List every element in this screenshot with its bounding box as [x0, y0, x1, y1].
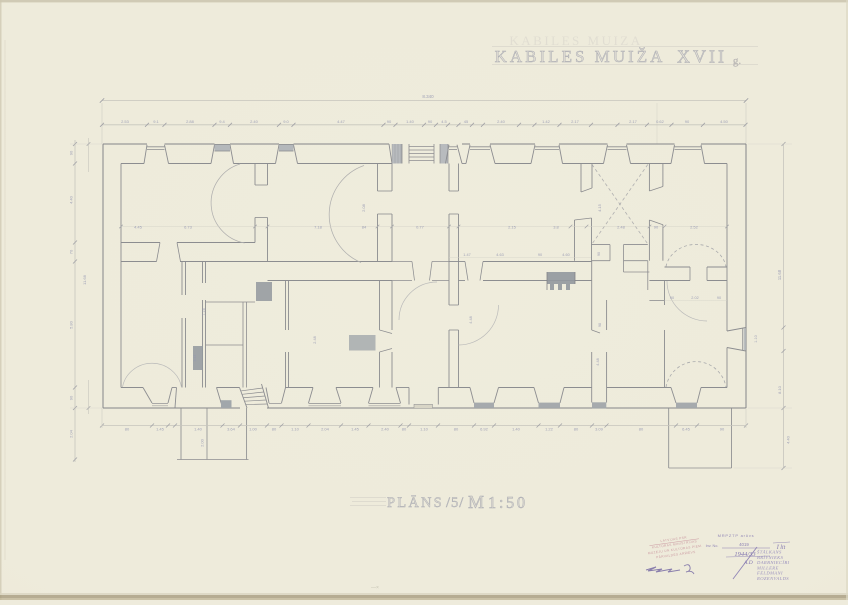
svg-text:7.16: 7.16 [202, 308, 206, 315]
svg-text:1.00: 1.00 [249, 427, 258, 432]
svg-text:98: 98 [598, 323, 602, 327]
svg-text:80: 80 [125, 427, 130, 432]
svg-text:2.48: 2.48 [617, 224, 626, 229]
svg-text:ŠTĀLKANS: ŠTĀLKANS [757, 550, 782, 555]
svg-text:90: 90 [387, 119, 392, 124]
svg-text:9.0: 9.0 [283, 119, 289, 124]
svg-text:80: 80 [272, 427, 277, 432]
svg-text:4.15: 4.15 [597, 203, 602, 212]
svg-text:1.22: 1.22 [545, 427, 554, 432]
svg-text:g.: g. [733, 55, 742, 67]
svg-text:90: 90 [654, 224, 659, 229]
svg-text:4019: 4019 [739, 542, 749, 547]
svg-text:6.73: 6.73 [184, 224, 193, 229]
svg-text:/5/: /5/ [446, 495, 464, 511]
svg-text:11.68: 11.68 [777, 269, 782, 280]
svg-text:4.48: 4.48 [596, 358, 600, 365]
svg-text:45: 45 [464, 119, 469, 124]
svg-text:4.40: 4.40 [69, 195, 74, 204]
svg-text:1.40: 1.40 [512, 427, 521, 432]
svg-text:84: 84 [362, 224, 367, 229]
svg-text:M: M [468, 492, 484, 512]
svg-text:2.15: 2.15 [508, 224, 517, 229]
svg-text:90: 90 [428, 119, 433, 124]
svg-text:KABILES MUIZA: KABILES MUIZA [509, 33, 642, 48]
svg-text:80: 80 [639, 427, 644, 432]
svg-text:4.60: 4.60 [562, 253, 569, 257]
svg-text:90: 90 [670, 296, 674, 300]
svg-text:1.10: 1.10 [420, 427, 429, 432]
svg-text:2.17: 2.17 [571, 119, 580, 124]
svg-text:XVII: XVII [677, 47, 727, 67]
svg-text:2.40: 2.40 [497, 119, 506, 124]
svg-text:9.4: 9.4 [219, 119, 225, 124]
svg-text:2.52: 2.52 [690, 224, 699, 229]
svg-text:PLĀNS: PLĀNS [387, 495, 444, 511]
svg-text:3.44: 3.44 [193, 355, 197, 362]
svg-text:8.340: 8.340 [422, 94, 434, 99]
svg-text:80: 80 [454, 427, 459, 432]
svg-text:90: 90 [538, 253, 542, 257]
svg-text:FELDMANI: FELDMANI [756, 571, 783, 576]
svg-text:A.D: A.D [743, 560, 753, 566]
svg-text:6.45: 6.45 [682, 427, 691, 432]
svg-text:1.47: 1.47 [463, 253, 470, 257]
svg-text:9.1: 9.1 [153, 119, 159, 124]
svg-text:2.04: 2.04 [321, 427, 330, 432]
svg-text:5.80: 5.80 [69, 320, 74, 329]
svg-text:DARBNIECĪBI: DARBNIECĪBI [756, 560, 790, 565]
svg-text:4.40: 4.40 [786, 435, 791, 444]
svg-text:MILLERE: MILLERE [756, 565, 779, 570]
svg-text:2.48: 2.48 [313, 336, 317, 343]
svg-text:1.10: 1.10 [291, 427, 300, 432]
svg-text:2.17: 2.17 [629, 119, 638, 124]
svg-text:80: 80 [574, 427, 579, 432]
svg-text:2.88: 2.88 [186, 119, 195, 124]
svg-text:1.40: 1.40 [194, 427, 203, 432]
svg-text:3.09: 3.09 [595, 427, 604, 432]
svg-text:90: 90 [720, 427, 725, 432]
svg-text:´: ´ [832, 586, 834, 592]
svg-text:90: 90 [685, 119, 690, 124]
svg-text:4.47: 4.47 [337, 119, 346, 124]
svg-text:90: 90 [597, 252, 601, 256]
svg-text:2.02: 2.02 [691, 296, 698, 300]
svg-text:7.18: 7.18 [314, 224, 323, 229]
svg-text:2.40: 2.40 [250, 119, 259, 124]
svg-text:ROZENVALDS: ROZENVALDS [756, 576, 789, 581]
svg-text:1.40: 1.40 [406, 119, 415, 124]
svg-text:Inv. No.: Inv. No. [706, 544, 719, 548]
svg-text:BRĪVNIEKS: BRĪVNIEKS [757, 555, 784, 560]
svg-text:3.64: 3.64 [227, 427, 236, 432]
svg-text:70: 70 [69, 249, 74, 254]
svg-text:3.8: 3.8 [553, 224, 559, 229]
svg-text:—×: —× [371, 585, 379, 591]
svg-text:1.42: 1.42 [542, 119, 551, 124]
svg-text:11.68: 11.68 [82, 274, 87, 284]
svg-text:90: 90 [717, 296, 721, 300]
svg-text:8.10: 8.10 [777, 385, 782, 394]
svg-text:1.45: 1.45 [351, 427, 360, 432]
svg-text:2.40: 2.40 [381, 427, 390, 432]
svg-text:80: 80 [402, 427, 407, 432]
svg-text:2.00: 2.00 [200, 438, 205, 447]
svg-text:1:50: 1:50 [488, 493, 528, 512]
svg-text:2.53: 2.53 [121, 119, 130, 124]
svg-text:4.5: 4.5 [441, 119, 447, 124]
svg-text:90: 90 [69, 395, 74, 400]
svg-text:MRPZTP arūvs: MRPZTP arūvs [718, 533, 755, 538]
svg-text:4.63: 4.63 [496, 253, 503, 257]
svg-text:4.45: 4.45 [134, 224, 143, 229]
svg-text:6.92: 6.92 [480, 427, 489, 432]
svg-text:1.10: 1.10 [754, 335, 758, 342]
svg-text:2.04: 2.04 [69, 429, 74, 438]
svg-text:4.50: 4.50 [720, 119, 729, 124]
svg-text:1.45: 1.45 [156, 427, 165, 432]
svg-text:4.48: 4.48 [469, 316, 473, 323]
svg-text:2.08: 2.08 [361, 203, 366, 212]
svg-text:KABILES MUIŽA: KABILES MUIŽA [495, 47, 666, 66]
svg-text:90: 90 [69, 150, 74, 155]
svg-text:0.62: 0.62 [656, 119, 665, 124]
svg-text:0.77: 0.77 [416, 224, 425, 229]
